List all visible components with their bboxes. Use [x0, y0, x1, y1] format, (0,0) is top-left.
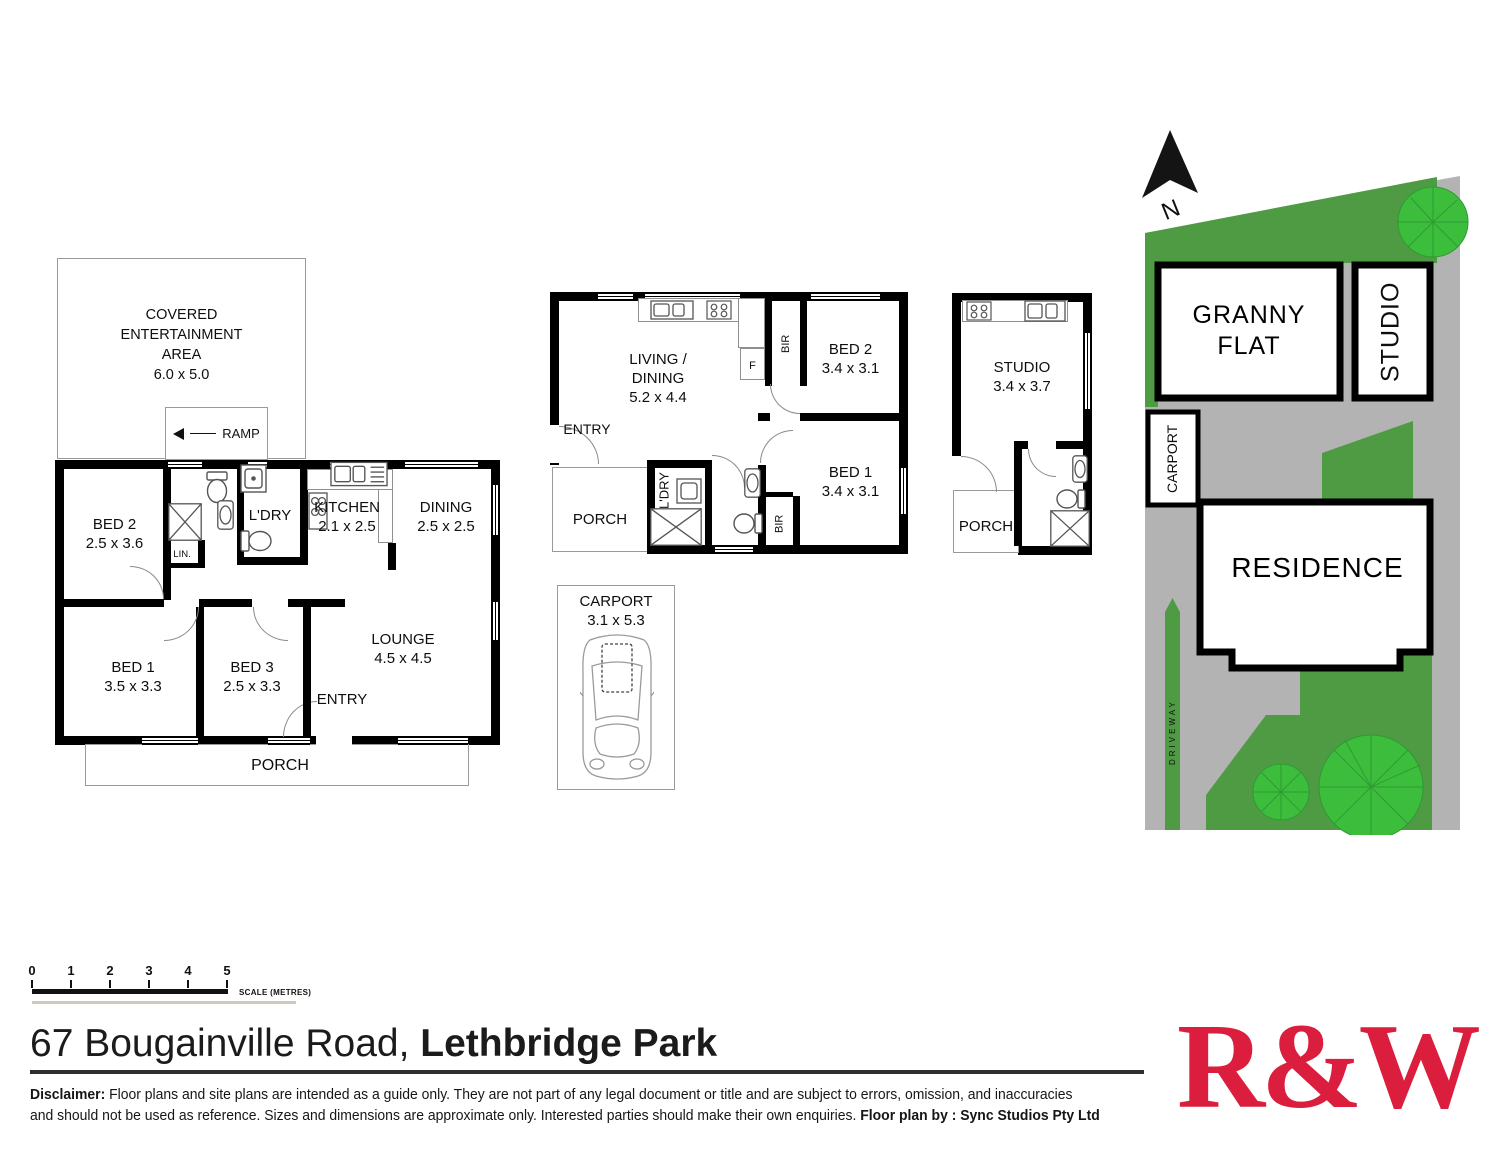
- ramp-label: RAMP: [222, 426, 260, 441]
- scale-tick: [109, 980, 111, 988]
- wall: [237, 557, 307, 565]
- basin-icon: [217, 500, 234, 530]
- wall: [793, 496, 800, 554]
- scale-tick: [70, 980, 72, 988]
- wall: [765, 301, 772, 386]
- site-granny-flat-label: GRANNY FLAT: [1158, 300, 1340, 362]
- bir-label: BIR: [766, 500, 793, 548]
- room-label-gbed1: BED 13.4 x 3.1: [798, 463, 903, 501]
- room-label-bed1: BED 13.5 x 3.3: [78, 658, 188, 696]
- scale-tick: [226, 980, 228, 988]
- wall: [388, 543, 396, 570]
- window: [491, 602, 500, 640]
- scale-tick-label: 1: [59, 963, 83, 978]
- wall: [199, 599, 252, 607]
- ldry-label: L'DRY: [652, 462, 676, 520]
- tree: [1253, 764, 1309, 820]
- entry-label: ENTRY: [310, 690, 374, 709]
- scale-tick: [187, 980, 189, 988]
- room-label-ldry: L'DRY: [238, 506, 302, 525]
- kitchen-bench: [738, 298, 765, 348]
- stove-icon: [706, 300, 732, 320]
- window: [491, 485, 500, 535]
- ramp-outline: RAMP: [165, 407, 268, 460]
- ramp-arrow-line: [190, 433, 216, 435]
- basin-icon: [1072, 455, 1088, 483]
- bir-label: BIR: [772, 318, 800, 370]
- window: [142, 736, 198, 745]
- scale-underline: [32, 1001, 296, 1004]
- laundry-trough-icon: [676, 478, 702, 504]
- scale-tick: [148, 980, 150, 988]
- entertainment-area-label: COVERED ENTERTAINMENT AREA 6.0 x 5.0: [80, 305, 283, 385]
- scale-tick-label: 3: [137, 963, 161, 978]
- north-label: N: [1158, 194, 1184, 226]
- window: [168, 460, 202, 469]
- linen-label: LIN.: [166, 549, 198, 560]
- window: [598, 292, 633, 301]
- property-address: 67 Bougainville Road, Lethbridge Park: [30, 1022, 717, 1066]
- shower-icon: [168, 503, 202, 541]
- stove-icon: [966, 301, 992, 321]
- room-label-living: LIVING / DINING 5.2 x 4.4: [598, 350, 718, 407]
- fridge-label: F: [740, 357, 765, 376]
- window: [405, 460, 478, 469]
- car-top-view: [580, 632, 654, 780]
- entry-label: ENTRY: [556, 420, 618, 439]
- floorplan-page: COVERED ENTERTAINMENT AREA 6.0 x 5.0 RAM…: [0, 0, 1495, 1150]
- window: [268, 736, 310, 745]
- porch-label: PORCH: [955, 517, 1017, 536]
- carport-label: CARPORT3.1 x 5.3: [557, 592, 675, 630]
- window: [811, 292, 880, 301]
- wall: [1056, 441, 1092, 449]
- wall: [165, 563, 205, 568]
- kitchen-sink-icon: [330, 461, 388, 487]
- scale-tick-label: 0: [20, 963, 44, 978]
- room-label-lounge: LOUNGE4.5 x 4.5: [348, 630, 458, 668]
- address-suburb: Lethbridge Park: [420, 1022, 717, 1065]
- ramp-label-row: RAMP: [166, 408, 267, 459]
- wall: [758, 413, 770, 421]
- room-label-bed3: BED 32.5 x 3.3: [198, 658, 306, 696]
- address-street: 67 Bougainville Road,: [30, 1022, 420, 1065]
- room-label-kitchen: KITCHEN2.1 x 2.5: [303, 498, 391, 536]
- disclaimer-line1: Disclaimer: Floor plans and site plans a…: [30, 1086, 1072, 1103]
- site-driveway-label: DRIVEWAY: [1164, 650, 1181, 815]
- tree: [1398, 187, 1468, 257]
- wall: [705, 460, 712, 554]
- kitchen-sink-icon: [650, 300, 694, 320]
- disclaimer-line2: and should not be used as reference. Siz…: [30, 1107, 1100, 1124]
- window: [715, 545, 753, 554]
- rw-logo: R&W: [1177, 1006, 1463, 1128]
- room-label-studio: STUDIO3.4 x 3.7: [952, 358, 1092, 396]
- scale-bar: [32, 989, 228, 994]
- porch-label: PORCH: [565, 510, 635, 529]
- wall: [64, 599, 164, 607]
- window: [398, 736, 468, 745]
- north-arrow-icon: [1142, 130, 1198, 198]
- site-carport-label: CARPORT: [1150, 422, 1194, 496]
- site-studio-label: STUDIO: [1362, 285, 1420, 378]
- toilet-icon: [733, 510, 763, 537]
- wall: [766, 492, 793, 497]
- toilet-icon: [1056, 486, 1086, 512]
- room-label-bed2: BED 22.5 x 3.6: [62, 515, 167, 553]
- scale-tick-label: 5: [215, 963, 239, 978]
- room-label-gbed2: BED 23.4 x 3.1: [798, 340, 903, 378]
- site-residence: [1200, 502, 1430, 668]
- scale-tick-label: 4: [176, 963, 200, 978]
- tree: [1319, 735, 1423, 835]
- ramp-arrow-icon: [173, 428, 184, 440]
- toilet-icon: [240, 528, 272, 554]
- divider-rule: [30, 1070, 1144, 1074]
- scale-tick: [31, 980, 33, 988]
- room-label-dining: DINING2.5 x 2.5: [402, 498, 490, 536]
- wall: [288, 599, 345, 607]
- main-porch-label: PORCH: [248, 756, 312, 775]
- laundry-trough-icon: [240, 464, 267, 493]
- basin-icon: [744, 468, 761, 498]
- shower-icon: [1050, 510, 1090, 547]
- scale-caption: SCALE (METRES): [239, 988, 311, 997]
- scale-tick-label: 2: [98, 963, 122, 978]
- site-residence-label: RESIDENCE: [1205, 552, 1430, 584]
- kitchen-sink-icon: [1024, 300, 1066, 322]
- wall: [800, 413, 899, 421]
- entry-opening: [316, 736, 352, 745]
